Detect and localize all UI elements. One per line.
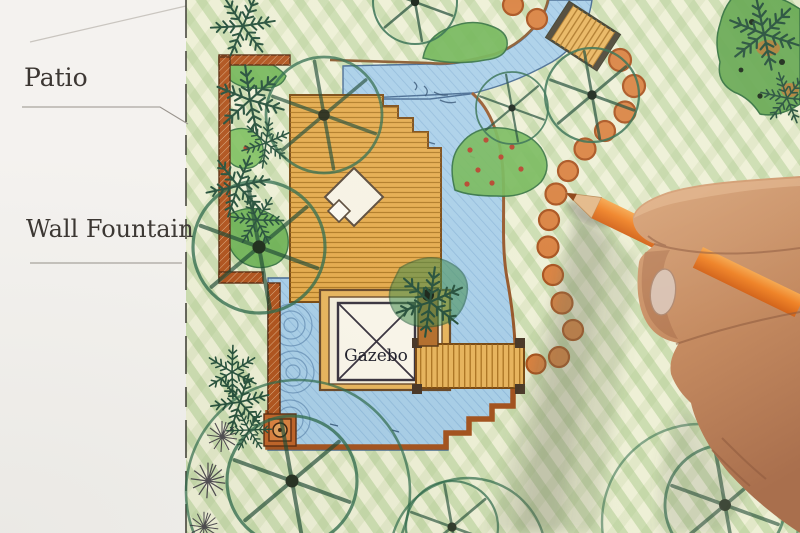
- gazebo-label: Gazebo: [344, 346, 408, 366]
- landscape-plan-photo: Patio Wall Fountain: [0, 0, 800, 533]
- wall-fountain-label: Wall Fountain: [26, 215, 194, 243]
- patio-label: Patio: [24, 63, 88, 92]
- plan-drawing: Patio Wall Fountain: [0, 0, 800, 533]
